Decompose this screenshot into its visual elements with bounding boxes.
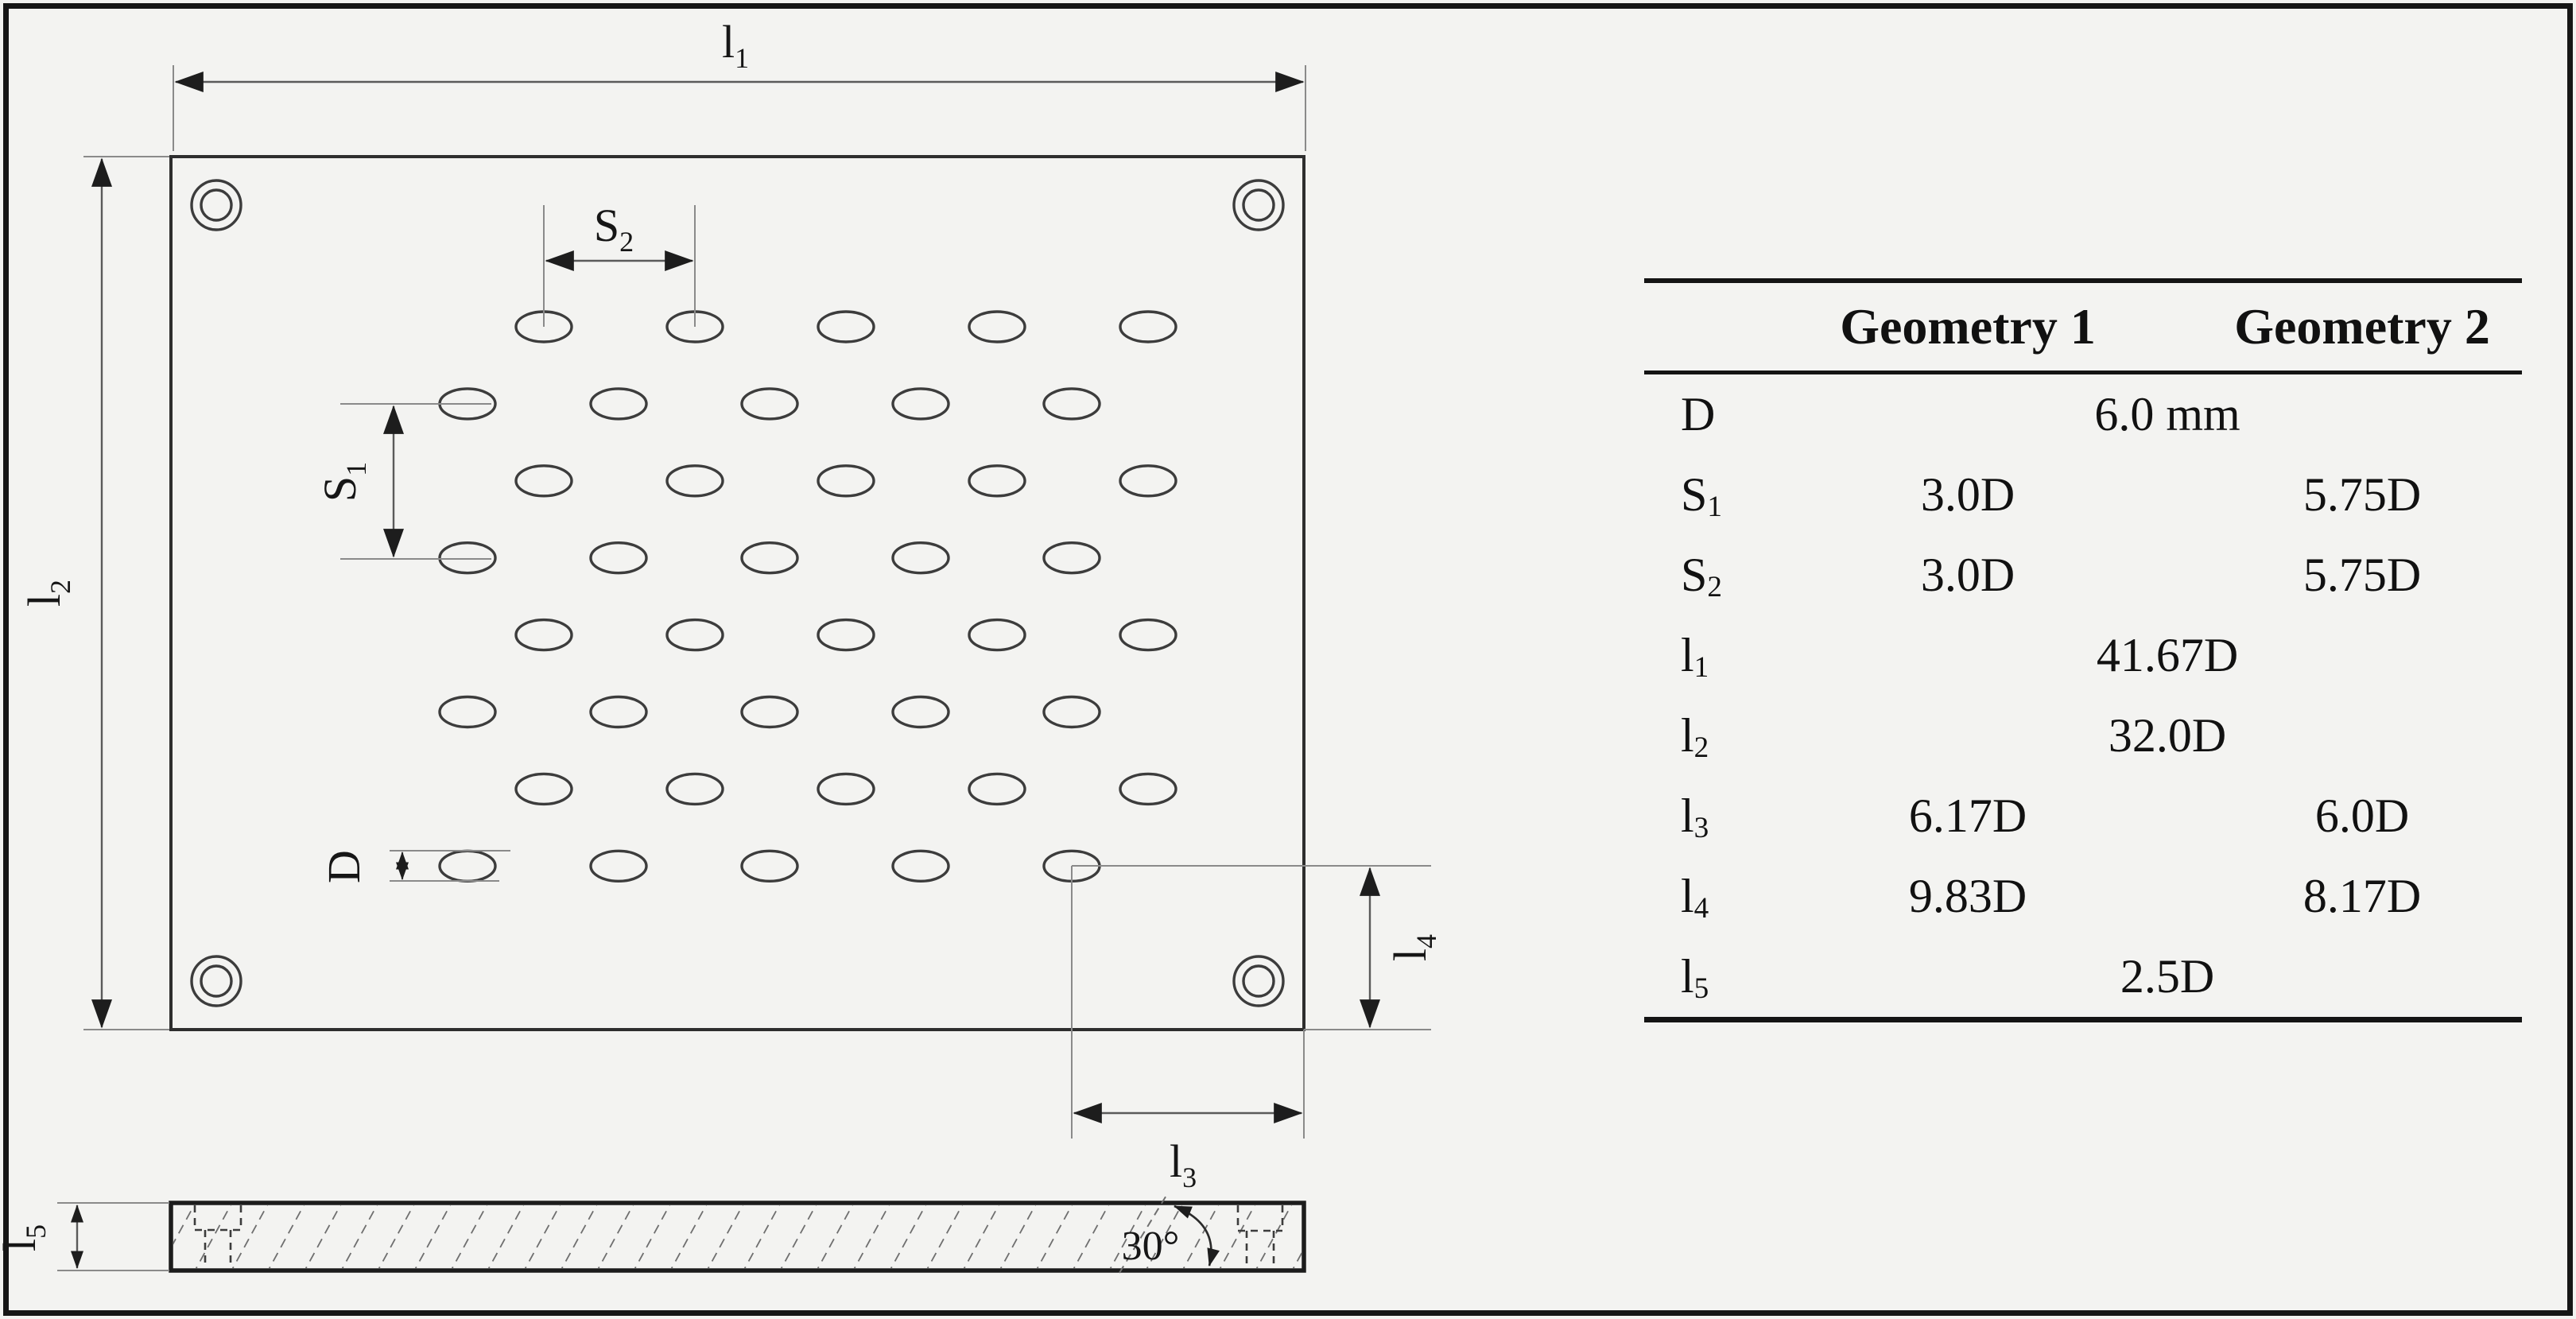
plate-hole — [969, 312, 1025, 342]
label-l2: l2 — [18, 580, 76, 607]
dimension-l2: l2 — [18, 157, 169, 1030]
plate-hole — [1120, 466, 1176, 496]
bolt-hole-circle — [192, 956, 241, 1006]
plate-hole — [969, 620, 1025, 650]
row-label: S1 — [1644, 467, 1813, 522]
hatch-line — [924, 1198, 966, 1275]
row-label: l2 — [1644, 708, 1813, 763]
hatch-line — [119, 1198, 161, 1275]
plate-hole — [591, 543, 646, 573]
bolt-hole-circle — [1243, 966, 1274, 996]
plate-hole — [667, 620, 723, 650]
label-d: D — [318, 850, 370, 883]
plate-hole — [742, 543, 797, 573]
bolt-hole-circle — [192, 180, 241, 230]
hatch-line — [375, 1198, 417, 1275]
hatch-line — [266, 1198, 308, 1275]
plate-hole — [1044, 543, 1100, 573]
hatch-line — [522, 1198, 564, 1275]
label-l5: l5 — [0, 1224, 52, 1251]
hatch-line — [1326, 1198, 1368, 1275]
table-row: S2 3.0D 5.75D — [1644, 535, 2522, 615]
hatch-line — [156, 1198, 198, 1275]
row-value-g2: 6.0D — [2123, 789, 2522, 844]
table-row: l2 32.0D — [1644, 696, 2522, 776]
label-l4: l4 — [1384, 934, 1442, 961]
plate-outline — [171, 157, 1304, 1030]
row-value-g1: 6.17D — [1813, 789, 2123, 844]
header-geometry-2: Geometry 2 — [2123, 297, 2522, 356]
plate-hole — [667, 466, 723, 496]
label-l3: l3 — [1170, 1135, 1197, 1193]
bolt-hole-circle — [1243, 190, 1274, 220]
row-label: D — [1644, 387, 1813, 442]
plate-hole — [1044, 697, 1100, 727]
row-label: l4 — [1644, 869, 1813, 924]
table-row: l4 9.83D 8.17D — [1644, 856, 2522, 937]
hatch-line — [814, 1198, 856, 1275]
dimension-l5: l5 — [0, 1203, 169, 1271]
row-value-g1: 3.0D — [1813, 548, 2123, 603]
plate-hole — [591, 389, 646, 419]
row-value-span: 41.67D — [1813, 628, 2522, 683]
hatch-line — [631, 1198, 673, 1275]
right-counterbore — [1238, 1205, 1282, 1268]
table-row: l3 6.17D 6.0D — [1644, 776, 2522, 856]
hatch-line — [1034, 1198, 1076, 1275]
table-row: S1 3.0D 5.75D — [1644, 455, 2522, 535]
plate-hole — [818, 620, 874, 650]
row-value-g2: 5.75D — [2123, 548, 2522, 603]
plate-hole — [1120, 774, 1176, 804]
row-value-g1: 3.0D — [1813, 467, 2123, 522]
hatch-line — [339, 1198, 381, 1275]
plate-hole — [440, 851, 495, 881]
plate-hole — [516, 620, 572, 650]
hatch-line — [448, 1198, 491, 1275]
row-label: l5 — [1644, 949, 1813, 1004]
geometry-table: Geometry 1 Geometry 2 D 6.0 mm S1 3.0D 5… — [1644, 278, 2522, 1022]
hatch-line — [997, 1198, 1039, 1275]
plate-hole — [1044, 389, 1100, 419]
dimension-s1: S1 — [314, 404, 491, 559]
row-value-g2: 8.17D — [2123, 869, 2522, 924]
plate-hole — [818, 466, 874, 496]
hatch-angle-annotation: 30° — [1119, 1194, 1211, 1273]
plate-hole — [742, 851, 797, 881]
hatch-line — [887, 1198, 929, 1275]
hatch-line — [229, 1198, 271, 1275]
row-value-span: 6.0 mm — [1813, 387, 2522, 442]
row-value-span: 2.5D — [1813, 949, 2522, 1004]
table-row: l5 2.5D — [1644, 937, 2522, 1017]
row-value-g1: 9.83D — [1813, 869, 2123, 924]
label-hatch-angle: 30° — [1122, 1224, 1180, 1269]
dimension-s2: S2 — [544, 200, 695, 327]
hatch-line — [960, 1198, 1003, 1275]
hatch-line — [851, 1198, 893, 1275]
bolt-hole-circle — [201, 966, 231, 996]
hatch-line — [302, 1198, 344, 1275]
plate-hole — [742, 389, 797, 419]
hatch-line — [778, 1198, 820, 1275]
row-value-span: 32.0D — [1813, 708, 2522, 763]
hatch-line — [595, 1198, 637, 1275]
plate-hole — [893, 389, 949, 419]
plate-hole — [1120, 312, 1176, 342]
plate-hole — [440, 543, 495, 573]
row-label: l3 — [1644, 789, 1813, 844]
hatch-line — [704, 1198, 747, 1275]
header-geometry-1: Geometry 1 — [1813, 297, 2123, 356]
label-s2: S2 — [594, 200, 634, 258]
bolt-hole-circle — [1234, 180, 1283, 230]
bolt-hole-circle — [201, 190, 231, 220]
plate-hole — [969, 774, 1025, 804]
cross-section: 30° l5 — [0, 1194, 1368, 1275]
row-value-g2: 5.75D — [2123, 467, 2522, 522]
hatch-line — [668, 1198, 710, 1275]
plate-hole — [591, 851, 646, 881]
row-label: S2 — [1644, 548, 1813, 603]
hatch-line — [412, 1198, 454, 1275]
hatch-line — [485, 1198, 527, 1275]
table-header-row: Geometry 1 Geometry 2 — [1644, 283, 2522, 374]
plate-hole — [742, 697, 797, 727]
plate-hole — [969, 466, 1025, 496]
plate-hole — [516, 466, 572, 496]
table-row: D 6.0 mm — [1644, 374, 2522, 455]
plate-hole — [440, 697, 495, 727]
plate-hole — [893, 697, 949, 727]
hatch-line — [1180, 1198, 1222, 1275]
plate-hole — [516, 774, 572, 804]
hole-pattern — [440, 312, 1176, 881]
label-l1: l1 — [722, 16, 749, 74]
plate-hole — [818, 312, 874, 342]
label-s1: S1 — [314, 462, 372, 502]
hatch-line — [741, 1198, 783, 1275]
plate-hole — [818, 774, 874, 804]
dimension-l1: l1 — [173, 16, 1305, 151]
row-label: l1 — [1644, 628, 1813, 683]
plate-hole — [1120, 620, 1176, 650]
hatch-line — [1290, 1198, 1332, 1275]
hatch-line — [1070, 1198, 1112, 1275]
table-row: l1 41.67D — [1644, 615, 2522, 696]
bolt-hole-circle — [1234, 956, 1283, 1006]
plate-hole — [893, 851, 949, 881]
plate-hole — [667, 774, 723, 804]
figure-canvas: { "figure": { "background": "#f3f3f1", "… — [0, 0, 2576, 1319]
hatch-line — [192, 1198, 235, 1275]
hatch-line — [558, 1198, 600, 1275]
plate-hole — [893, 543, 949, 573]
plate-hole — [591, 697, 646, 727]
